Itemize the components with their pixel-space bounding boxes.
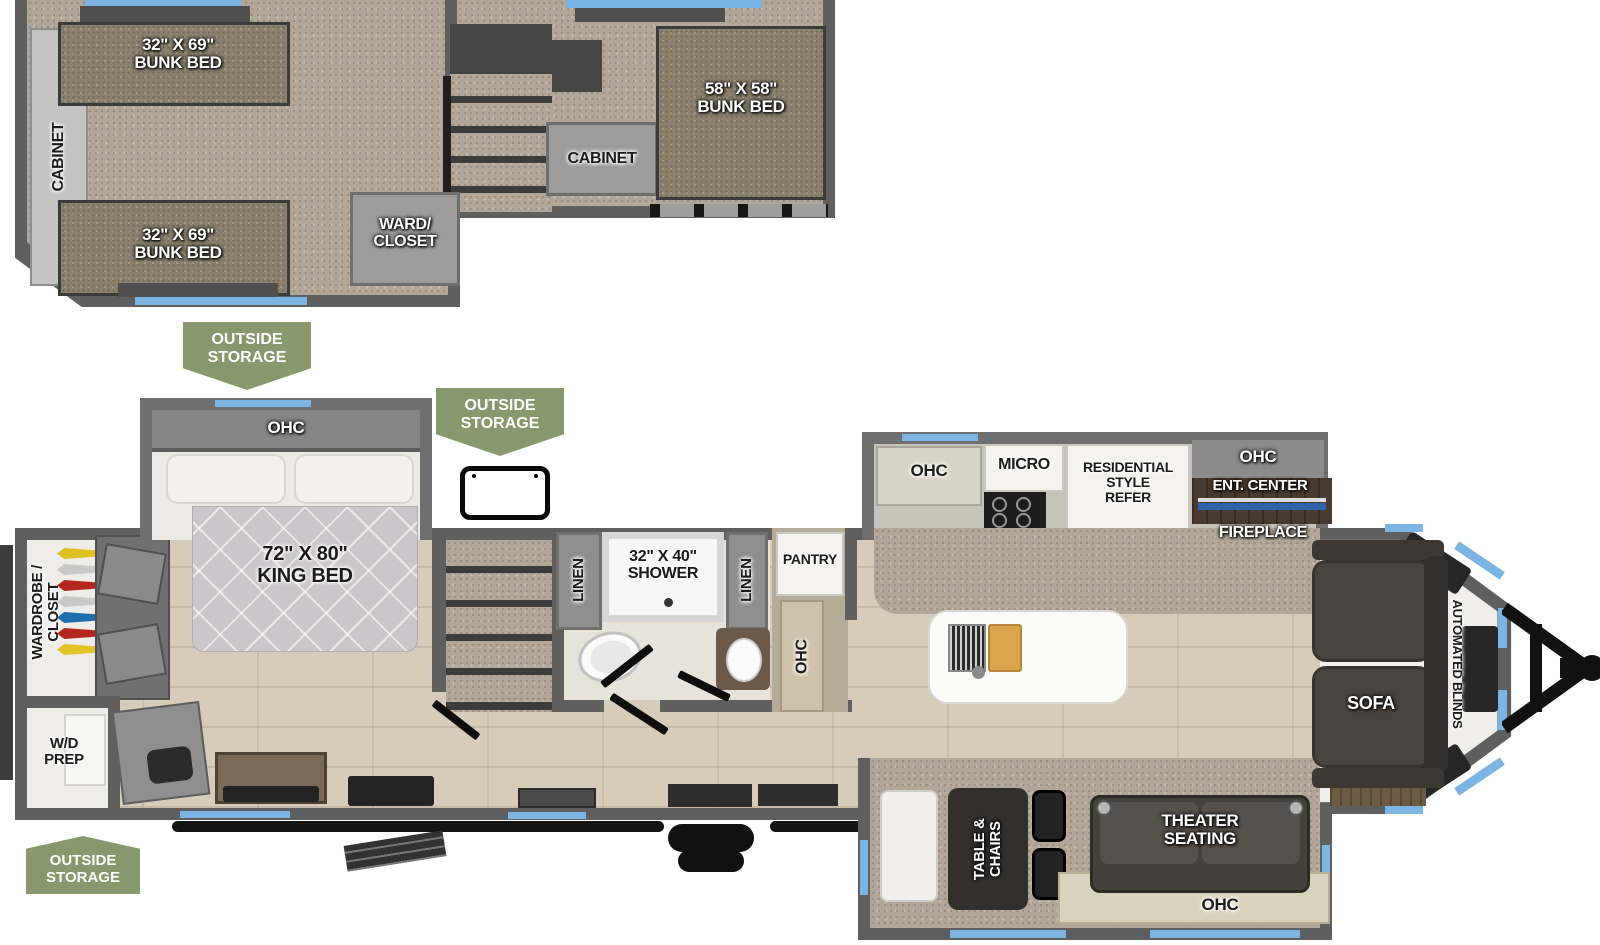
kitchen-ohc-cabinet [876,446,982,506]
bed-pillow-left [166,454,286,504]
sofa-armrest-bottom [1312,768,1444,788]
entry-steps [668,824,754,852]
bedroom-slide-window [215,400,311,407]
main-stair-tread [446,702,552,710]
loft-cabinet-box [546,122,658,196]
main-stair-tread [446,668,552,675]
linen-left [556,532,602,630]
entry-doormat [518,788,596,808]
loft-window-top-right [566,0,762,8]
loft-bunk-bottom-canopy [118,283,278,297]
bedroom-bottom-window [180,811,290,818]
ent-tv-shelf [1198,498,1326,502]
pantry-kitchen-wall [845,528,857,620]
rear-window-dark-1 [668,784,752,807]
shower [602,532,724,622]
ent-ohc-cabinet [1192,440,1324,478]
loft-bunk-bottom [58,200,290,296]
linen-right [726,532,768,630]
loft-railing [650,204,828,217]
main-stair-tread [446,600,552,607]
fold-step [344,830,447,871]
theater-cupholder-left [1096,800,1112,816]
island-sink [948,624,986,672]
exterior-tv-dot-right [534,474,538,478]
sofa-cushion-bottom [1312,666,1432,768]
wardrobe-cabinet-door-bottom [97,623,167,685]
king-bed [192,506,418,652]
bedroom-desk-chair [146,745,194,784]
bedroom-bench-top [223,786,319,802]
burner [992,497,1007,512]
refrigerator [1066,444,1190,530]
main-stair-tread [446,566,552,573]
dinette-table [948,788,1028,910]
dinette-window-side-left [860,840,868,895]
loft-rear-bunk [656,26,826,200]
entry-steps-lower [678,850,744,872]
loft-stair-tread [450,156,552,163]
dinette-window-bottom-left [950,930,1066,938]
cap-window-top [1385,524,1423,532]
dinette-window-bottom-right [1150,930,1300,938]
awning-rail-right [770,821,868,832]
theater-seat-right [1202,802,1300,864]
main-bottom-wall [15,808,865,820]
floorplan-stage: CABINET 32" X 69" BUNK BED 32" X 69" BUN… [0,0,1600,945]
loft-window-bottom [135,297,307,305]
rear-window-dark-2 [758,784,838,806]
wardrobe-cabinet-door-top [97,543,167,605]
kitchen-carpet [874,528,1336,614]
loft-bunk-top [58,22,290,106]
washer-prep-box [64,714,106,786]
outside-storage-banner-mid: OUTSIDE STORAGE [436,388,564,456]
loft-stair-tread [450,126,552,133]
burner [1016,513,1031,528]
outside-storage-banner-bottom: OUTSIDE STORAGE [26,836,140,894]
burner [992,513,1007,528]
dinette-chair-top [1032,790,1066,842]
rear-bumper [0,545,13,780]
kitchen-slide-window [902,434,978,441]
bedroom-stairs-wall [432,540,446,692]
bedroom-table [348,776,434,806]
sofa-wood-trim [1330,788,1426,806]
shower-drain [664,598,673,607]
sofa-backrest [1424,556,1448,772]
loft-stair-tread [450,96,552,103]
island-faucet [972,666,985,679]
bath-sink [726,638,762,682]
main-stair-tread [446,634,552,641]
sofa-cushion-top [1312,560,1432,662]
pantry [776,532,844,596]
loft-rear-bunk-canopy [575,8,725,22]
outside-storage-banner-top: OUTSIDE STORAGE [183,322,311,390]
loft-stair-landing [450,24,552,74]
awning-rail-left [172,821,664,832]
entry-door-window [508,812,586,819]
island-cutting-board [988,624,1022,672]
bedroom-ohc-cabinet [152,410,420,452]
loft-ward-closet [350,192,460,286]
cap-nose-table [1462,626,1498,712]
bed-pillow-right [294,454,414,504]
bath-ohc-cabinet [780,600,824,712]
cap-window-bottom [1385,806,1423,814]
main-rear-wall [15,528,27,820]
ent-tv [1198,503,1326,510]
theater-seat-left [1100,802,1198,864]
sofa-armrest-top [1312,540,1444,560]
wd-room-wall-top [15,696,120,708]
loft-stair-landing2 [552,40,602,92]
exterior-tv-dot-left [472,474,476,478]
burner [1016,497,1031,512]
bath-bottom-wall-left [552,700,604,712]
loft-stair-tread [450,186,552,193]
theater-cupholder-right [1288,800,1304,816]
microwave [984,444,1064,492]
dinette-bench [880,790,938,902]
hitch-icon [1502,592,1600,744]
